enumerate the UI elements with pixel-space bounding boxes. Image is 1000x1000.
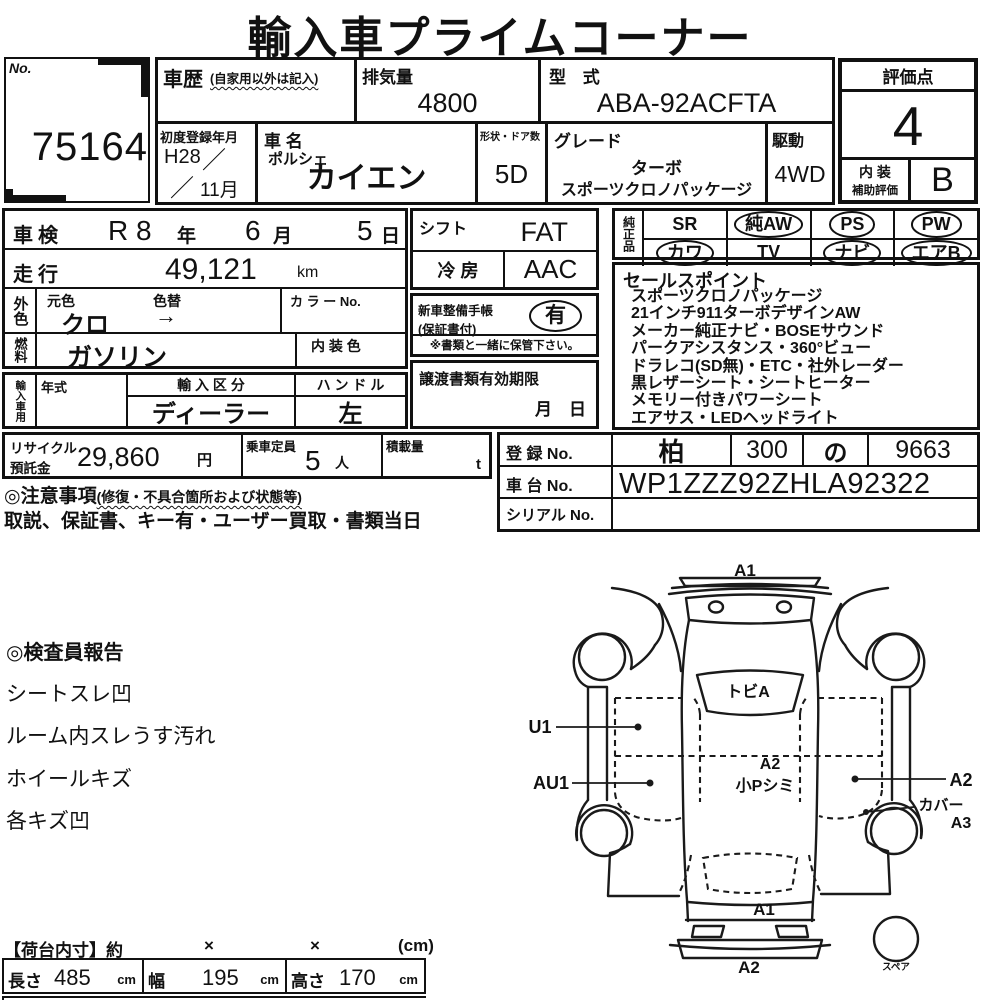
chassis-value: WP1ZZZ92ZHLA92322	[613, 467, 977, 497]
corner-mark-bottom-left	[4, 189, 66, 203]
score-box: 評価点 4 内 装 補助評価 B	[838, 58, 978, 204]
next-row-fragment	[2, 996, 426, 1000]
shaken-month-value: 6	[245, 215, 261, 247]
color-no-cell: カ ラ ー No.	[280, 289, 405, 332]
transfer-docs-label: 譲渡書類有効期限	[419, 368, 539, 389]
right-rocker	[892, 687, 910, 800]
cargo-width-cell: 幅 195 cm	[144, 960, 287, 992]
shift-ac-block: シフト FAT 冷 房 AAC	[410, 208, 599, 290]
sales-point-line: パークアシスタンス・360°ビュー	[631, 340, 973, 357]
equipment-label: 純正品	[615, 211, 642, 257]
notes-heading: ◎注意事項(修復・不具合箇所および状態等)	[4, 481, 302, 508]
cargo-times-2: ×	[310, 936, 320, 956]
displacement-label: 排気量	[362, 63, 413, 88]
doors-cell: 形状・ドア数 5D	[478, 124, 548, 202]
cargo-height-cell: 高さ 170 cm	[287, 960, 424, 992]
history-cell: 車歴 (自家用以外は記入)	[158, 60, 357, 124]
defect-label-tobi-a: トビA	[726, 683, 770, 701]
cargo-length-label: 長さ	[8, 967, 42, 992]
import-block: 輸入車用 年式 輸 入 区 分 ディーラー ハ ン ド ル 左	[2, 372, 408, 429]
inspector-report-line: ルーム内スレうす汚れ	[6, 720, 215, 750]
mileage-unit: km	[297, 264, 318, 282]
grade-label: グレード	[554, 127, 622, 152]
defect-label-a1-rear: A1	[753, 900, 775, 919]
cargo-times-1: ×	[204, 936, 214, 956]
grade-cell: グレード ターボ スポーツクロノパッケージ	[548, 124, 768, 202]
sales-point-line: スポーツクロノパッケージ	[631, 288, 973, 305]
first-reg-month: 11月	[200, 175, 239, 202]
serial-label: シリアル No.	[500, 499, 613, 529]
displacement-cell: 排気量 4800	[357, 60, 541, 124]
shift-row: シフト FAT	[413, 211, 596, 252]
grade-line2: スポーツクロノパッケージ	[548, 176, 765, 200]
shaken-month-suffix: 月	[273, 221, 292, 248]
notes-heading-note: (修復・不具合箇所および状態等)	[97, 489, 302, 505]
registration-block: 登 録 No. 柏 300 の 9663 車 台 No. WP1ZZZ92ZHL…	[497, 432, 980, 532]
equip-sr: SR	[642, 211, 726, 238]
import-division-value: ディーラー	[128, 397, 294, 426]
doors-value: 5D	[478, 159, 545, 190]
auction-number: 75164	[6, 125, 148, 170]
shaken-row: 車検 R 8 年 6 月 5 日	[5, 211, 405, 250]
inspector-report-heading: ◎検査員報告	[6, 636, 215, 665]
drive-cell: 駆動 4WD	[768, 124, 832, 202]
first-reg-cell: 初度登録年月 H28 ／ ／ 11月	[158, 124, 258, 202]
ac-label: 冷 房	[413, 252, 505, 287]
fuel-row: 燃料 ガソリン 内 装 色	[5, 334, 405, 366]
auction-no-box: No. 75164	[4, 57, 150, 203]
front-panel	[686, 595, 814, 624]
ac-row: 冷 房 AAC	[413, 252, 596, 287]
history-note: (自家用以外は記入)	[210, 68, 318, 87]
car-condition-diagram: A1 トビA U1 AU1 A2 小Pシミ A2 カバー A3 A1 A2 スペ…	[490, 555, 1000, 1000]
defect-label-a1-front: A1	[734, 561, 756, 580]
recycle-block: リサイクル 預託金 29,860 円 乗車定員 5 人 積載量 t	[2, 432, 492, 479]
auction-sheet: 輸入車プライムコーナー No. 75164 車歴 (自家用以外は記入) 排気量 …	[0, 0, 1000, 1000]
interior-score-row: 内 装 補助評価 B	[842, 157, 974, 200]
equip-pw: PW	[893, 211, 977, 238]
inspector-report-line: ホイールキズ	[6, 763, 215, 793]
cargo-width-value: 195	[202, 965, 239, 991]
serial-row: シリアル No.	[500, 499, 977, 529]
cargo-width-label: 幅	[148, 967, 165, 992]
sales-point-line: メーカー純正ナビ・BOSEサウンド	[631, 323, 973, 340]
left-front-wheel	[579, 634, 625, 680]
transfer-docs-month: 月	[535, 395, 552, 420]
registration-area: 柏	[613, 435, 732, 465]
rear-window	[703, 854, 797, 894]
sales-point-line: エアサス・LEDヘッドライト	[631, 410, 973, 427]
defect-label-a2-right: A2	[949, 770, 972, 790]
car-name-cell: 車 名 ポルシェ カイエン	[258, 124, 478, 202]
spare-label: スペア	[882, 962, 910, 973]
sales-point-line: 21インチ911ターボデザインAW	[631, 305, 973, 322]
shaken-day-suffix: 日	[381, 221, 400, 248]
mileage-label: 走行	[13, 258, 63, 287]
color-change-arrow: →	[155, 303, 177, 329]
cargo-width-unit: cm	[260, 972, 279, 987]
service-book-value: 有	[529, 300, 582, 332]
service-book-label: 新車整備手帳 (保証書付)	[418, 300, 493, 338]
sales-point-line: ドラレコ(SD無)・ETC・社外レーダー	[631, 358, 973, 375]
defect-label-p-stain: 小Pシミ	[736, 777, 795, 795]
car-model: カイエン	[258, 153, 475, 197]
recycle-value: 29,860	[77, 442, 160, 473]
capacity-unit: 人	[335, 453, 349, 473]
cargo-unit-note: (cm)	[398, 936, 434, 956]
first-reg-label: 初度登録年月	[160, 127, 238, 146]
chassis-label: 車 台 No.	[500, 467, 613, 497]
load-unit: t	[476, 456, 481, 473]
shift-value: FAT	[520, 217, 568, 248]
no-label: No.	[9, 60, 32, 76]
recycle-label: リサイクル 預託金	[10, 437, 77, 477]
fuel-value: ガソリン	[67, 338, 167, 374]
defect-label-a2-roof: A2	[760, 756, 781, 773]
history-label: 車歴	[163, 63, 203, 92]
shaken-year-suffix: 年	[177, 221, 196, 248]
cargo-length-unit: cm	[117, 972, 136, 987]
corner-mark-top-right	[98, 57, 150, 97]
load-label: 積載量	[386, 436, 424, 455]
interior-color-label: 内 装 色	[311, 336, 361, 356]
transfer-docs-block: 譲渡書類有効期限 月 日	[410, 360, 599, 429]
registration-class: 300	[732, 435, 804, 465]
cargo-length-value: 485	[54, 965, 91, 991]
sales-point-line: メモリー付きパワーシート	[631, 392, 973, 409]
first-reg-era: H28	[164, 146, 201, 169]
defect-label-u1: U1	[528, 717, 551, 737]
taillight-left	[692, 926, 724, 937]
color-label: 外色	[5, 289, 37, 332]
capacity-value: 5	[305, 445, 321, 477]
cargo-table: 長さ 485 cm 幅 195 cm 高さ 170 cm	[2, 958, 426, 994]
shaken-era: R 8	[108, 215, 152, 247]
equip-ps: PS	[810, 211, 894, 238]
first-reg-slash2: ／	[170, 168, 194, 203]
defect-label-a3: A3	[951, 815, 972, 832]
registration-number: 9663	[869, 435, 977, 465]
doors-label: 形状・ドア数	[480, 128, 540, 143]
model-code-value: ABA-92ACFTA	[541, 88, 832, 119]
import-label: 輸入車用	[5, 375, 37, 426]
registration-row: 登 録 No. 柏 300 の 9663	[500, 435, 977, 467]
equipment-block: 純正品 SR 純AW PS PW カワ TV ナビ エアB	[612, 208, 980, 260]
score-value: 4	[842, 92, 974, 160]
cargo-header: 【荷台内寸】約 × × (cm)	[4, 936, 434, 956]
transfer-docs-day: 日	[569, 395, 586, 420]
cargo-height-label: 高さ	[291, 967, 325, 992]
left-front-fender	[612, 588, 663, 645]
shift-label: シフト	[419, 215, 467, 239]
defect-label-a2-rear: A2	[738, 958, 760, 977]
interior-score-label: 内 装 補助評価	[842, 160, 911, 200]
import-division-cell: 輸 入 区 分 ディーラー	[128, 375, 296, 426]
inspection-block: 車検 R 8 年 6 月 5 日 走行 49,121 km 外色 元色 色替 ク…	[2, 208, 408, 369]
inspector-report-line: 各キズ凹	[6, 805, 215, 835]
service-book-block: 新車整備手帳 (保証書付) 有 ※書類と一緒に保管下さい。	[410, 293, 599, 357]
registration-kana: の	[804, 435, 869, 465]
inspector-report-line: シートスレ凹	[6, 678, 215, 708]
defect-label-cover: カバー	[918, 797, 963, 814]
cargo-length-cell: 長さ 485 cm	[4, 960, 144, 992]
sales-points-block: セールスポイント スポーツクロノパッケージ 21インチ911ターボデザインAW …	[612, 262, 980, 430]
shaken-label: 車検	[13, 219, 63, 248]
ac-value: AAC	[505, 252, 596, 287]
registration-label: 登 録 No.	[500, 435, 613, 465]
shaken-day-value: 5	[357, 215, 373, 247]
taillight-right	[776, 926, 808, 937]
inspector-report: ◎検査員報告 シートスレ凹 ルーム内スレうす汚れ ホイールキズ 各キズ凹	[6, 636, 215, 835]
load-cell: 積載量 t	[383, 435, 489, 476]
notes-line: 取説、保証書、キー有・ユーザー買取・書類当日	[4, 506, 422, 533]
vehicle-info-grid: 車歴 (自家用以外は記入) 排気量 4800 型 式 ABA-92ACFTA 初…	[155, 57, 835, 205]
cargo-height-unit: cm	[399, 972, 418, 987]
chassis-row: 車 台 No. WP1ZZZ92ZHLA92322	[500, 467, 977, 499]
cargo-height-value: 170	[339, 965, 376, 991]
import-year-cell: 年式	[37, 375, 128, 426]
capacity-cell: 乗車定員 5 人	[243, 435, 383, 476]
drive-label: 駆動	[772, 127, 804, 151]
recycle-cell: リサイクル 預託金 29,860 円	[5, 435, 243, 476]
drive-value: 4WD	[768, 161, 832, 188]
service-book-note: ※書類と一緒に保管下さい。	[413, 334, 596, 354]
right-front-wheel	[873, 634, 919, 680]
import-year-label: 年式	[41, 377, 67, 396]
model-code-label: 型 式	[549, 63, 606, 88]
color-row: 外色 元色 色替 クロ → カ ラ ー No.	[5, 289, 405, 334]
equip-aw: 純AW	[726, 211, 810, 238]
color-no-label: カ ラ ー No.	[290, 291, 361, 310]
score-label: 評価点	[842, 62, 974, 92]
sales-points-list: スポーツクロノパッケージ 21インチ911ターボデザインAW メーカー純正ナビ・…	[631, 288, 973, 427]
service-book-row: 新車整備手帳 (保証書付) 有	[413, 296, 596, 334]
mileage-value: 49,121	[165, 253, 257, 287]
capacity-label: 乗車定員	[246, 436, 296, 455]
serial-value	[613, 499, 977, 529]
sales-point-line: 黒レザーシート・シートヒーター	[631, 375, 973, 392]
displacement-value: 4800	[357, 88, 538, 119]
first-reg-slash1: ／	[202, 140, 226, 175]
defect-label-au1: AU1	[533, 773, 569, 793]
handle-cell: ハ ン ド ル 左	[296, 375, 405, 426]
spare-tire	[874, 917, 918, 961]
handle-value: 左	[296, 397, 405, 426]
interior-color-cell: 内 装 色	[295, 334, 405, 366]
equipment-row-1: SR 純AW PS PW	[642, 211, 977, 240]
mileage-row: 走行 49,121 km	[5, 250, 405, 289]
fuel-label: 燃料	[5, 334, 37, 366]
recycle-unit: 円	[197, 449, 212, 470]
interior-score-value: B	[911, 160, 974, 200]
model-code-cell: 型 式 ABA-92ACFTA	[541, 60, 832, 124]
